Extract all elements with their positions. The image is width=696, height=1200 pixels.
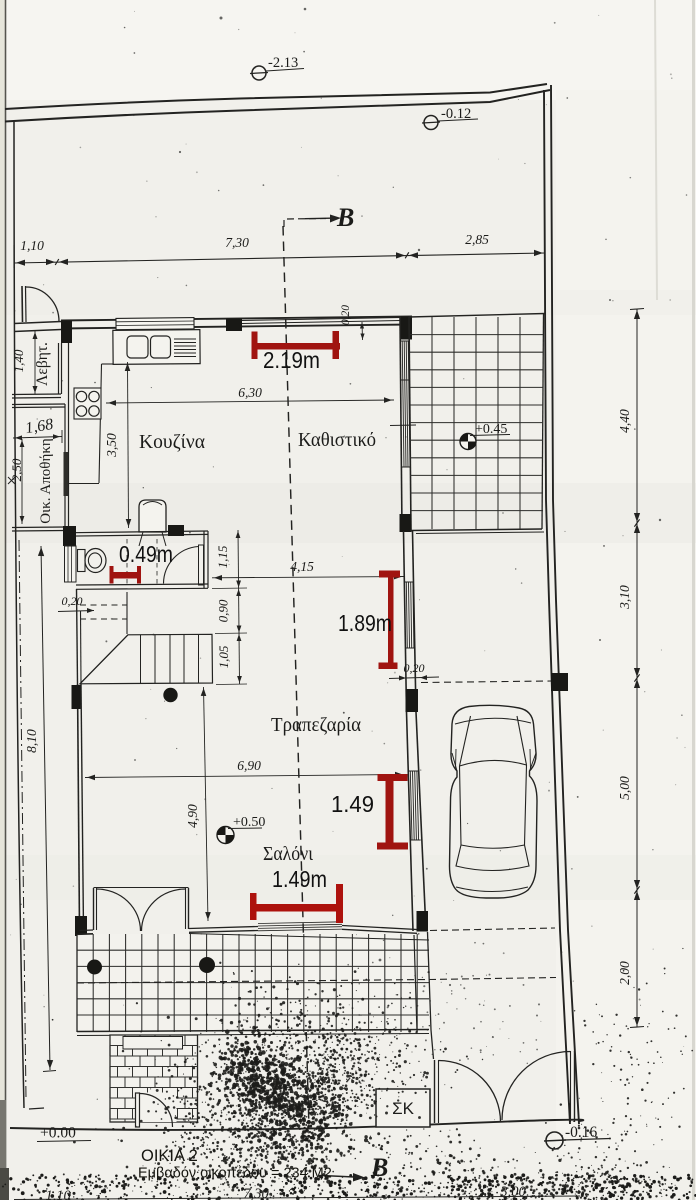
svg-text:0,20: 0,20 (340, 305, 352, 325)
svg-text:6,90: 6,90 (237, 758, 261, 773)
svg-text:1,05: 1,05 (216, 645, 231, 668)
svg-text:4,15: 4,15 (290, 559, 314, 574)
svg-text:1,10: 1,10 (20, 238, 44, 253)
svg-text:1.89m: 1.89m (338, 610, 392, 636)
svg-text:+0.00: +0.00 (40, 1125, 76, 1142)
svg-text:2,85: 2,85 (465, 232, 489, 247)
svg-text:Τραπεζαρία: Τραπεζαρία (271, 715, 361, 736)
svg-text:4,90: 4,90 (185, 804, 200, 828)
svg-text:2,50: 2,50 (9, 458, 24, 481)
svg-text:4,40: 4,40 (617, 409, 632, 433)
svg-text:0,90: 0,90 (216, 599, 231, 622)
svg-text:1.49: 1.49 (331, 791, 374, 817)
svg-text:0,20: 0,20 (404, 661, 425, 675)
svg-text:Οικ. Αποθήκη: Οικ. Αποθήκη (38, 438, 54, 524)
svg-text:7,30: 7,30 (225, 235, 249, 250)
svg-text:6,30: 6,30 (238, 385, 262, 400)
svg-text:1,15: 1,15 (215, 545, 230, 568)
svg-text:+0.45: +0.45 (475, 422, 507, 437)
svg-text:1,40: 1,40 (11, 349, 26, 372)
svg-text:Λεβητ.: Λεβητ. (34, 342, 51, 386)
svg-text:B: B (336, 203, 354, 232)
svg-text:2.19m: 2.19m (263, 347, 320, 373)
svg-text:+0.50: +0.50 (233, 815, 265, 830)
svg-text:1.49m: 1.49m (272, 866, 327, 892)
svg-text:3,50: 3,50 (104, 433, 119, 458)
svg-text:-0.12: -0.12 (441, 106, 471, 122)
svg-text:ΣΚ: ΣΚ (392, 1099, 415, 1118)
svg-text:-2.13: -2.13 (268, 55, 298, 71)
svg-text:0.49m: 0.49m (119, 541, 173, 567)
svg-text:8,10: 8,10 (24, 729, 39, 753)
svg-text:Καθιστικό: Καθιστικό (298, 430, 376, 451)
svg-text:0,20: 0,20 (62, 594, 83, 608)
svg-text:5,00: 5,00 (617, 776, 632, 800)
svg-text:3,10: 3,10 (617, 585, 632, 610)
svg-text:Σαλόνι: Σαλόνι (263, 844, 314, 865)
svg-text:Εμβαδόν οικοπέδου = 234 Μ2: Εμβαδόν οικοπέδου = 234 Μ2 (138, 1166, 332, 1182)
svg-text:Κουζίνα: Κουζίνα (139, 432, 205, 453)
svg-text:2,00: 2,00 (617, 961, 632, 985)
